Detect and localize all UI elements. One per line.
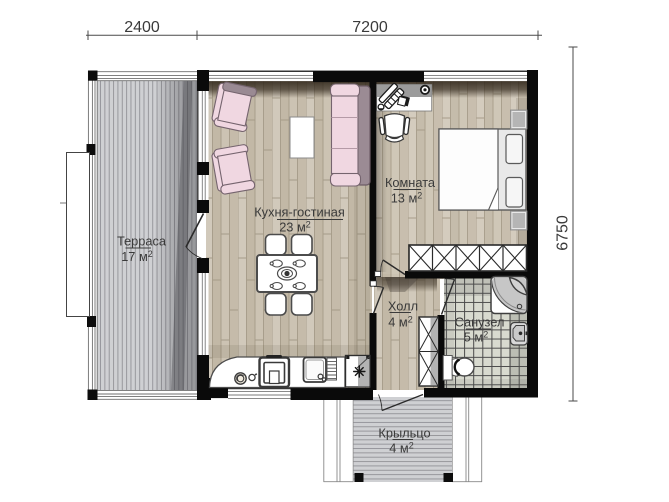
- svg-text:Кухня-гостиная: Кухня-гостиная: [254, 205, 345, 220]
- svg-text:Холл: Холл: [388, 299, 418, 314]
- svg-text:7200: 7200: [352, 19, 388, 36]
- svg-text:Комната: Комната: [385, 175, 436, 190]
- svg-text:2400: 2400: [124, 19, 160, 36]
- svg-text:6750: 6750: [555, 215, 572, 251]
- svg-text:Терраса: Терраса: [117, 234, 167, 249]
- svg-text:Крыльцо: Крыльцо: [378, 426, 430, 441]
- svg-text:Санузел: Санузел: [455, 315, 505, 330]
